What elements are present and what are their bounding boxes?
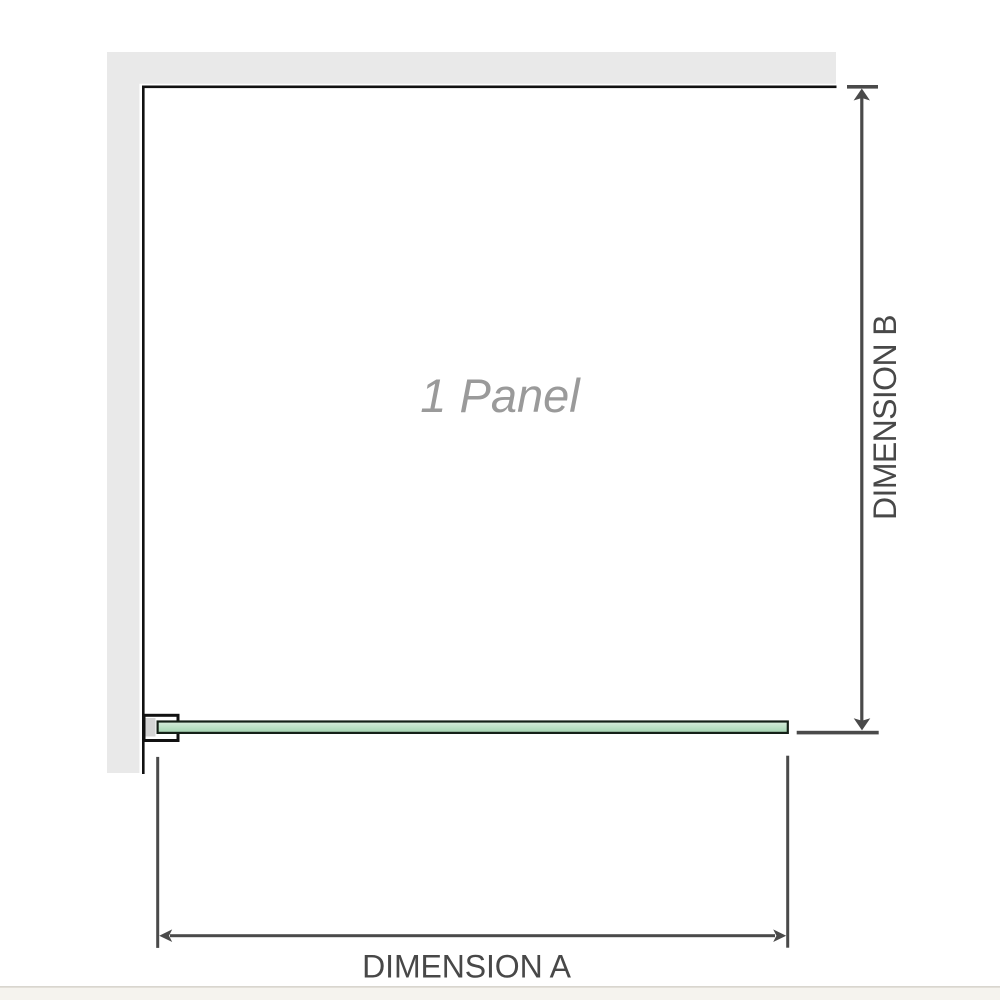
svg-text:DIMENSION B: DIMENSION B — [867, 315, 903, 520]
svg-text:1 Panel: 1 Panel — [420, 369, 581, 422]
svg-text:DIMENSION A: DIMENSION A — [362, 948, 571, 984]
